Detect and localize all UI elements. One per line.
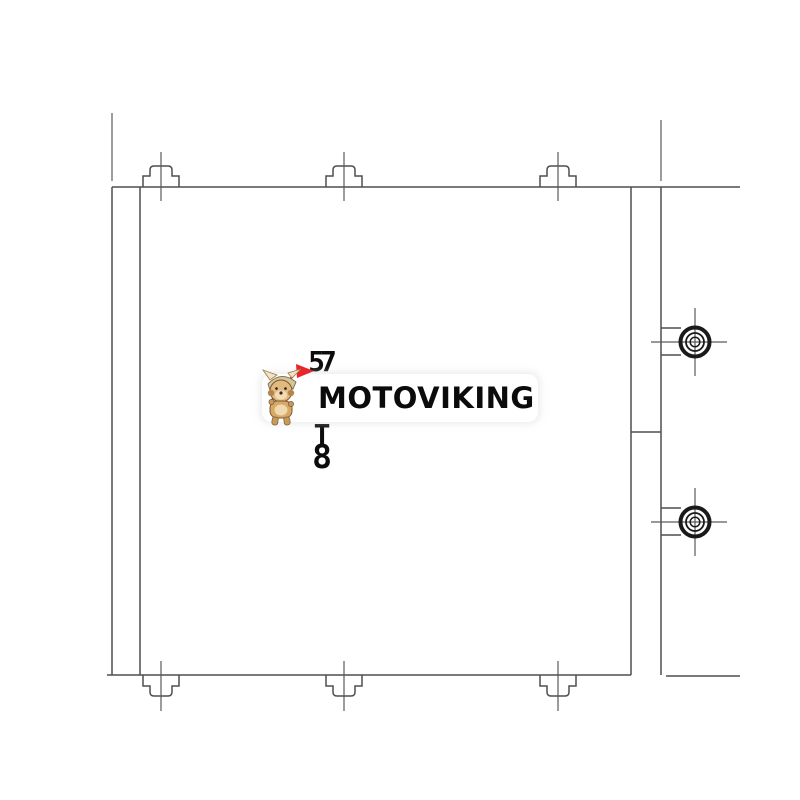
bolt-icon <box>326 661 362 711</box>
bolt-icon <box>143 152 179 201</box>
brand-name: MOTOVIKING <box>318 381 535 415</box>
upper-side-port <box>651 308 727 376</box>
bolt-icon <box>540 152 576 201</box>
top-mounting-bolts <box>143 152 576 201</box>
extension-lines <box>112 113 661 181</box>
product-image-canvas: 57 T 8 <box>0 0 800 800</box>
bolt-icon <box>143 661 179 711</box>
vertical-label-bottom: 8 <box>304 440 340 473</box>
cooler-body-outline <box>107 187 740 676</box>
bolt-icon <box>326 152 362 201</box>
bottom-mounting-bolts <box>143 661 576 711</box>
viking-dog-mascot-icon <box>256 362 318 432</box>
brand-watermark-badge: MOTOVIKING <box>262 374 538 422</box>
bolt-icon <box>540 661 576 711</box>
lower-side-port <box>651 488 727 556</box>
